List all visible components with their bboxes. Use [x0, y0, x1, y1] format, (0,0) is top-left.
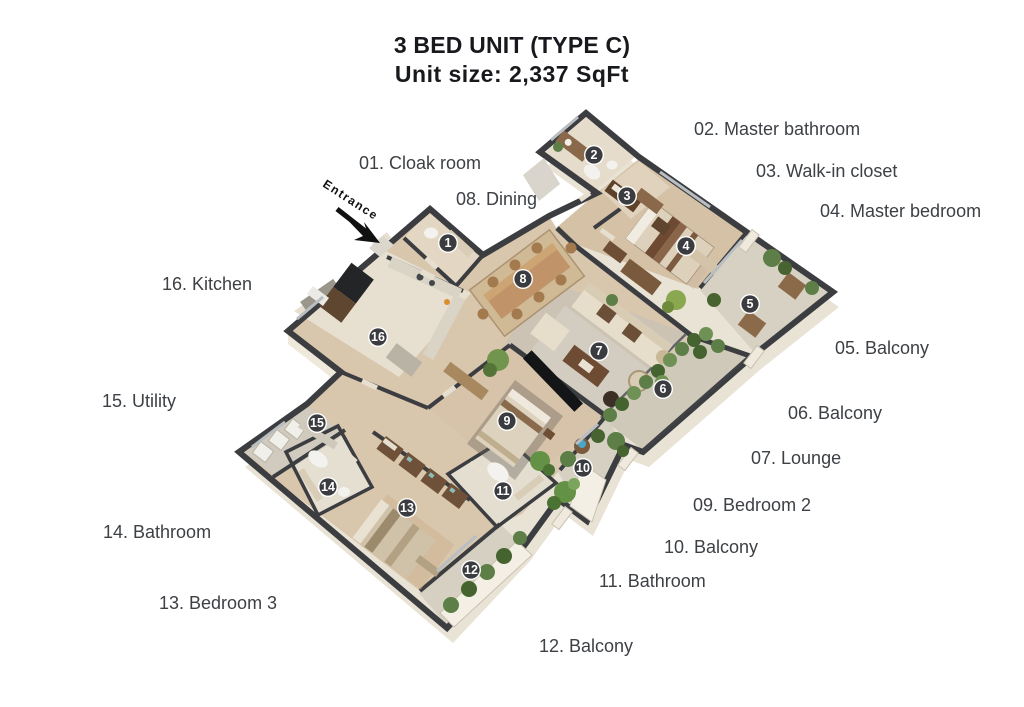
svg-text:6: 6: [660, 382, 667, 396]
svg-text:1: 1: [445, 236, 452, 250]
svg-text:3 BED UNIT (TYPE C): 3 BED UNIT (TYPE C): [394, 32, 630, 58]
svg-text:04. Master bedroom: 04. Master bedroom: [820, 201, 981, 221]
svg-text:10. Balcony: 10. Balcony: [664, 537, 758, 557]
svg-text:3: 3: [624, 189, 631, 203]
svg-text:11: 11: [496, 484, 509, 498]
svg-text:15: 15: [310, 416, 324, 430]
svg-text:16: 16: [371, 330, 385, 344]
svg-text:07. Lounge: 07. Lounge: [751, 448, 841, 468]
svg-text:11. Bathroom: 11. Bathroom: [599, 571, 706, 591]
svg-text:Unit size: 2,337 SqFt: Unit size: 2,337 SqFt: [395, 61, 629, 87]
svg-text:12: 12: [464, 563, 478, 577]
svg-text:06. Balcony: 06. Balcony: [788, 403, 882, 423]
svg-text:9: 9: [504, 414, 511, 428]
svg-text:10: 10: [576, 461, 590, 475]
svg-text:05. Balcony: 05. Balcony: [835, 338, 929, 358]
svg-text:13. Bedroom 3: 13. Bedroom 3: [159, 593, 277, 613]
svg-text:03. Walk-in closet: 03. Walk-in closet: [756, 161, 897, 181]
svg-text:16. Kitchen: 16. Kitchen: [162, 274, 252, 294]
svg-text:09. Bedroom 2: 09. Bedroom 2: [693, 495, 811, 515]
svg-text:14: 14: [321, 480, 335, 494]
svg-text:02. Master bathroom: 02. Master bathroom: [694, 119, 860, 139]
svg-text:5: 5: [747, 297, 754, 311]
svg-text:12. Balcony: 12. Balcony: [539, 636, 633, 656]
svg-text:15. Utility: 15. Utility: [102, 391, 176, 411]
svg-text:2: 2: [591, 148, 598, 162]
svg-text:14. Bathroom: 14. Bathroom: [103, 522, 211, 542]
svg-text:08. Dining: 08. Dining: [456, 189, 537, 209]
svg-text:4: 4: [683, 239, 690, 253]
svg-text:7: 7: [596, 344, 603, 358]
svg-text:Entrance: Entrance: [320, 177, 381, 223]
svg-text:8: 8: [520, 272, 527, 286]
svg-text:13: 13: [400, 501, 414, 515]
svg-text:01. Cloak room: 01. Cloak room: [359, 153, 481, 173]
